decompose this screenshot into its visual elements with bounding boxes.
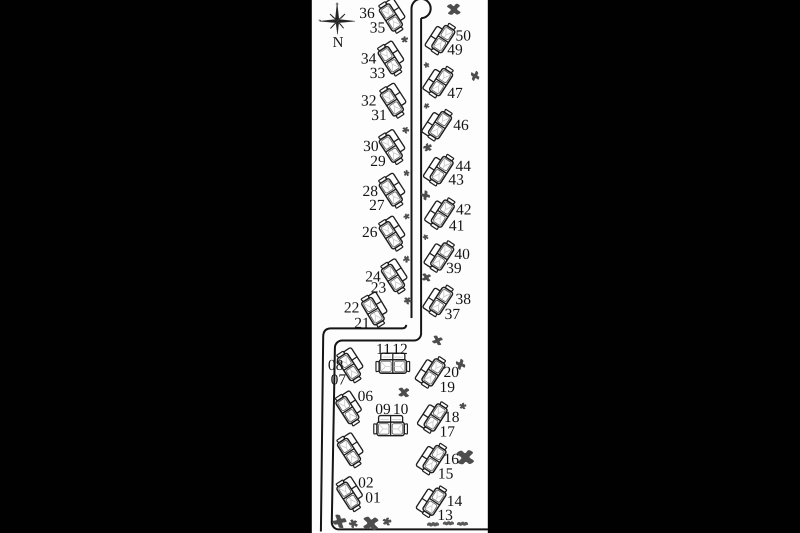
svg-text:10: 10: [393, 401, 409, 418]
svg-text:07: 07: [331, 371, 347, 388]
svg-text:15: 15: [438, 466, 454, 483]
svg-text:49: 49: [447, 42, 463, 59]
svg-text:09: 09: [375, 401, 391, 418]
svg-text:06: 06: [358, 388, 374, 405]
svg-text:39: 39: [446, 260, 462, 277]
svg-text:19: 19: [440, 379, 456, 396]
svg-text:01: 01: [365, 490, 381, 507]
svg-text:46: 46: [453, 117, 469, 134]
svg-text:11: 11: [376, 341, 391, 358]
svg-text:23: 23: [371, 280, 387, 297]
svg-text:47: 47: [447, 85, 463, 102]
svg-text:37: 37: [445, 306, 461, 323]
svg-text:29: 29: [370, 153, 386, 170]
svg-text:33: 33: [370, 65, 386, 82]
svg-text:41: 41: [449, 217, 465, 234]
svg-text:21: 21: [354, 315, 370, 332]
svg-text:N: N: [333, 35, 344, 51]
svg-text:31: 31: [371, 107, 387, 124]
svg-text:17: 17: [440, 424, 456, 441]
svg-text:12: 12: [392, 341, 408, 358]
svg-text:35: 35: [370, 20, 386, 37]
svg-text:42: 42: [456, 201, 472, 218]
svg-text:43: 43: [448, 172, 464, 189]
svg-text:27: 27: [369, 197, 385, 214]
svg-text:13: 13: [437, 507, 453, 524]
svg-text:26: 26: [362, 224, 378, 241]
